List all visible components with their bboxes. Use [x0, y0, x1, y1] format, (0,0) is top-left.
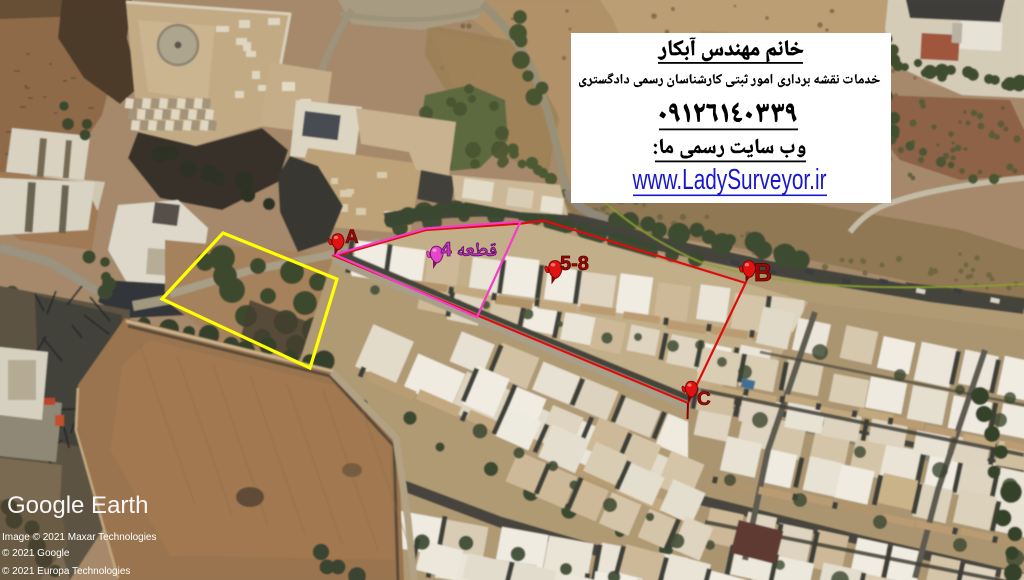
svg-text:© 2021 Europa Technologies: © 2021 Europa Technologies: [2, 566, 130, 577]
svg-text:A: A: [345, 227, 359, 248]
svg-text:Image © 2021 Maxar Technologie: Image © 2021 Maxar Technologies: [2, 532, 157, 543]
svg-text:B: B: [754, 259, 772, 287]
svg-text:www.LadySurveyor.ir: www.LadySurveyor.ir: [632, 164, 827, 196]
svg-text:© 2021 Google: © 2021 Google: [2, 548, 70, 559]
svg-text:5-8: 5-8: [560, 253, 589, 275]
svg-text:C: C: [697, 389, 711, 410]
svg-text:Google Earth: Google Earth: [7, 492, 148, 519]
